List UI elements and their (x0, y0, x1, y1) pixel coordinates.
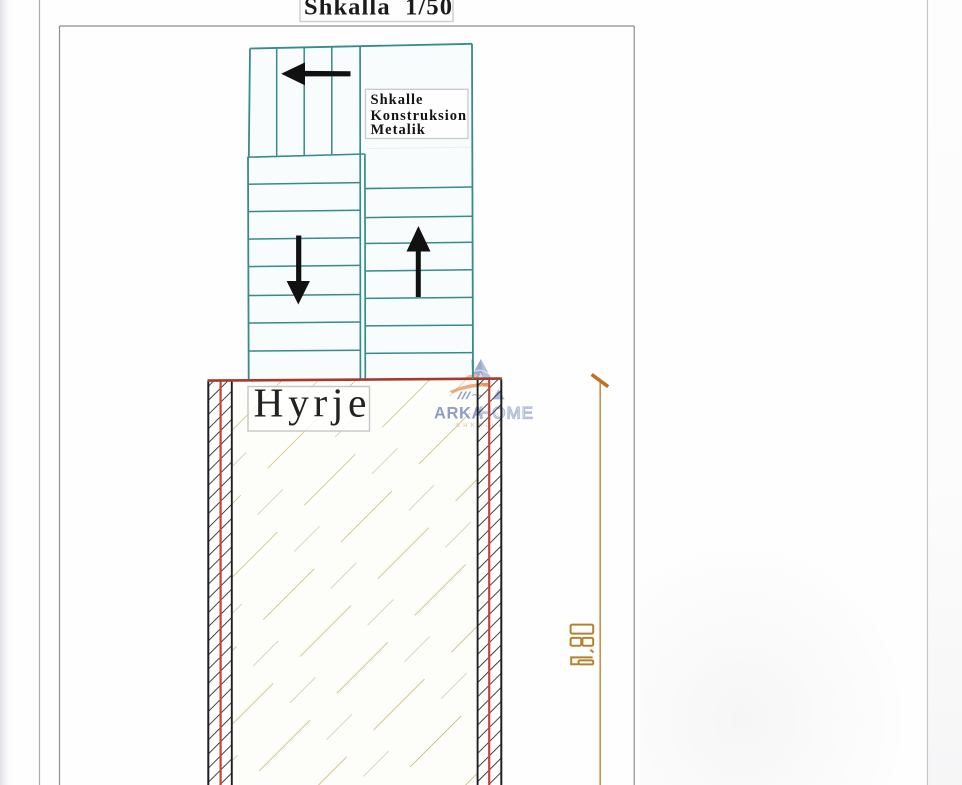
svg-text:ARKA: ARKA (434, 405, 484, 423)
svg-text:Metalik: Metalik (371, 122, 426, 138)
svg-text:Hyrje: Hyrje (254, 380, 372, 426)
svg-text:Shkalle: Shkalle (371, 92, 424, 108)
svg-text:Shkalla 1/50: Shkalla 1/50 (304, 0, 453, 21)
